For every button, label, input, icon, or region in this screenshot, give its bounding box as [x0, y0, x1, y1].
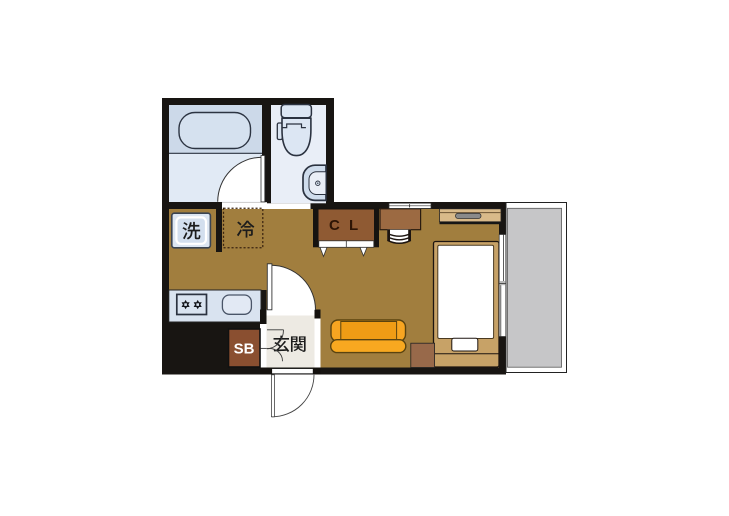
svg-text:SB: SB — [234, 341, 255, 358]
svg-text:C L: C L — [329, 217, 361, 234]
